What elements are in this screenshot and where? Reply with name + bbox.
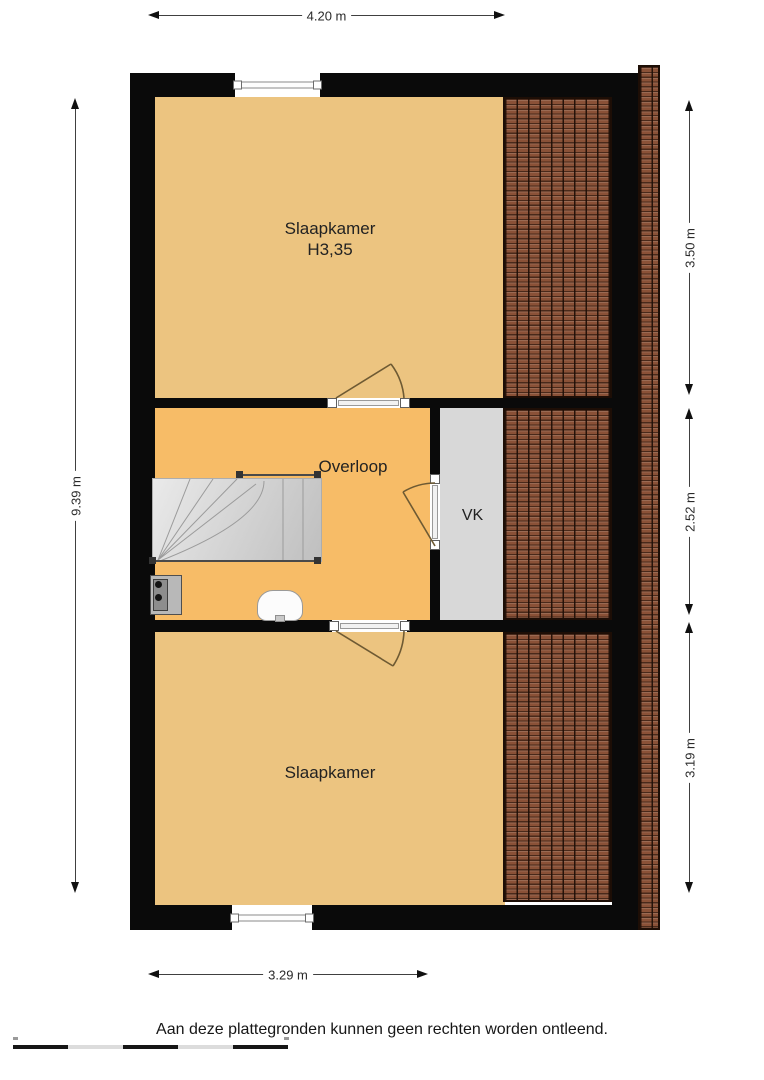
roof-tiles-bottom-segment	[503, 632, 612, 902]
door-opening-bedroom-top	[330, 398, 407, 408]
roof-tiles-outer-strip	[638, 65, 660, 930]
wall-interior-lower-left	[155, 620, 332, 632]
dimension-left-label: 9.39 m	[69, 471, 84, 521]
arrowhead-right-icon	[494, 11, 505, 19]
door-sill	[432, 485, 438, 539]
dimension-right-bottom: 3.19 m	[683, 622, 697, 893]
dimension-top-label: 4.20 m	[302, 9, 352, 24]
scale-tick-icon	[13, 1037, 18, 1040]
wall-vk-lower	[430, 547, 440, 622]
wall-interior-lower-right	[407, 620, 638, 632]
wall-bottom-right	[312, 905, 638, 930]
door-opening-vk	[430, 477, 440, 547]
roof-tiles-middle-segment	[503, 408, 612, 620]
dimension-left: 9.39 m	[69, 98, 83, 893]
wall-top-right	[320, 73, 638, 97]
door-jamb	[400, 398, 410, 408]
door-jamb	[329, 621, 339, 631]
dimension-bottom: 3.29 m	[148, 968, 428, 982]
dimension-right-bottom-label: 3.19 m	[683, 733, 698, 783]
dimension-right-top: 3.50 m	[683, 100, 697, 395]
arrowhead-up-icon	[685, 100, 693, 111]
room-name: Slaapkamer	[155, 762, 505, 783]
wall-right	[612, 73, 638, 930]
dimension-bottom-label: 3.29 m	[263, 968, 313, 983]
door-opening-bedroom-bottom	[332, 620, 407, 632]
wall-bottom-left	[130, 905, 232, 930]
window-glass	[240, 82, 315, 89]
wall-interior-upper-left	[155, 398, 330, 408]
door-jamb	[400, 621, 410, 631]
door-sill	[338, 400, 399, 406]
room-name: Slaapkamer	[155, 218, 505, 239]
chimney-shaft	[150, 575, 182, 615]
window-top	[235, 73, 320, 97]
window-jamb	[305, 913, 314, 922]
scale-bar-segment	[233, 1045, 288, 1049]
faucet-icon	[275, 615, 285, 622]
arrowhead-down-icon	[685, 604, 693, 615]
arrowhead-up-icon	[685, 408, 693, 419]
arrowhead-down-icon	[71, 882, 79, 893]
door-jamb	[327, 398, 337, 408]
window-glass	[237, 914, 307, 921]
dimension-top: 4.20 m	[148, 9, 505, 23]
floorplan-canvas: 4.20 m 9.39 m 3.50 m 2.52 m 3.19 m 3.29 …	[0, 0, 764, 1080]
dimension-right-middle: 2.52 m	[683, 408, 697, 615]
room-name: VK	[440, 505, 505, 526]
wall-top-left	[130, 73, 235, 97]
window-bottom	[232, 905, 312, 930]
disclaimer-text: Aan deze plattegronden kunnen geen recht…	[0, 1021, 764, 1039]
scale-bar-segment	[178, 1045, 233, 1049]
flue-pipe-icon	[155, 594, 162, 601]
roof-tiles-top-segment	[503, 97, 612, 398]
scale-bar-segment	[68, 1045, 123, 1049]
scale-bar-segment	[13, 1045, 68, 1049]
scale-tick-icon	[284, 1037, 289, 1040]
room-name: Overloop	[253, 456, 453, 477]
arrowhead-down-icon	[685, 882, 693, 893]
flue-pipe-icon	[155, 581, 162, 588]
arrowhead-right-icon	[417, 970, 428, 978]
arrowhead-left-icon	[148, 970, 159, 978]
wall-interior-upper-right	[407, 398, 638, 408]
room-label-bedroom-top: Slaapkamer H3,35	[155, 218, 505, 260]
door-sill	[340, 623, 399, 629]
room-height: H3,35	[155, 239, 505, 260]
room-label-vk: VK	[440, 505, 505, 526]
scale-bar	[13, 1045, 288, 1049]
arrowhead-up-icon	[685, 622, 693, 633]
window-jamb	[233, 81, 242, 90]
arrowhead-down-icon	[685, 384, 693, 395]
sink-basin	[257, 590, 303, 621]
dimension-right-middle-label: 2.52 m	[683, 487, 698, 537]
door-jamb	[430, 540, 440, 550]
arrowhead-left-icon	[148, 11, 159, 19]
room-label-bedroom-bottom: Slaapkamer	[155, 762, 505, 783]
window-jamb	[313, 81, 322, 90]
dimension-right-top-label: 3.50 m	[683, 223, 698, 273]
staircase	[152, 478, 322, 562]
room-label-landing: Overloop	[253, 456, 453, 477]
scale-bar-segment	[123, 1045, 178, 1049]
window-jamb	[230, 913, 239, 922]
arrowhead-up-icon	[71, 98, 79, 109]
